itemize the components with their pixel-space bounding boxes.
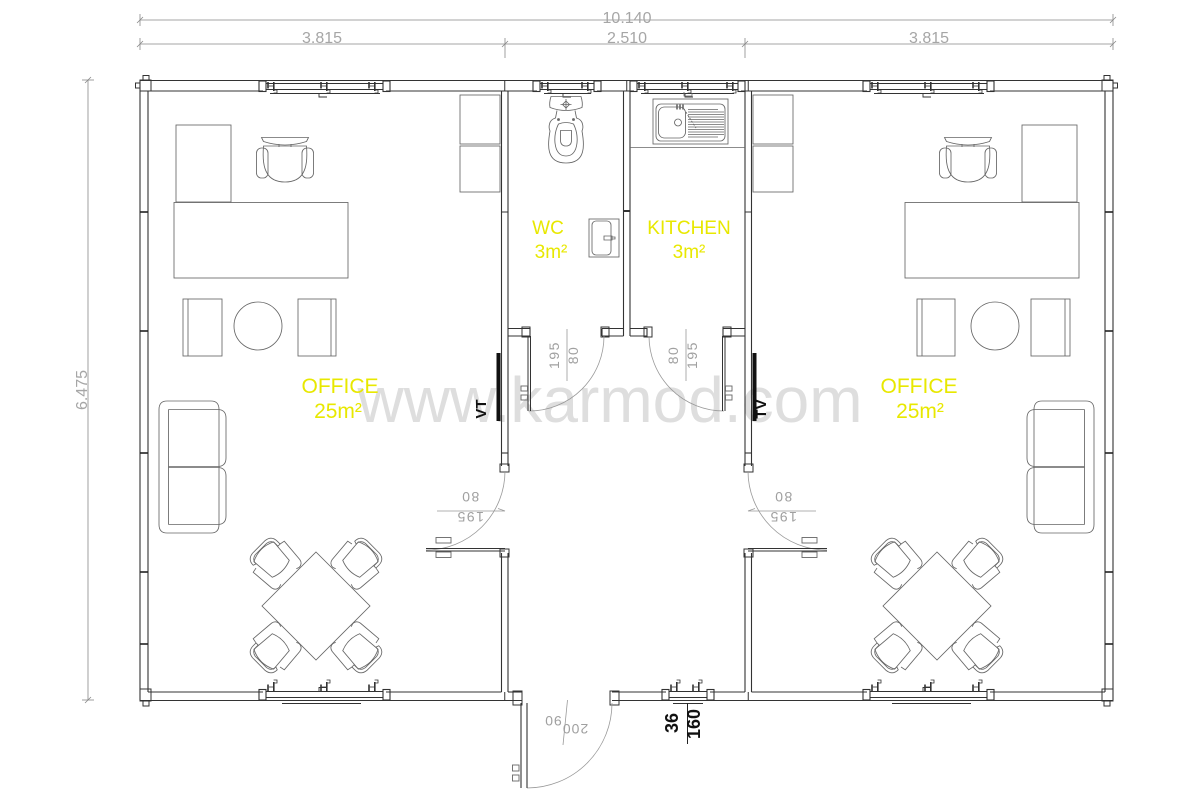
svg-text:195: 195	[684, 341, 700, 369]
svg-text:80: 80	[665, 346, 681, 365]
svg-text:WC: WC	[532, 218, 564, 239]
svg-text:3m²: 3m²	[673, 242, 706, 263]
svg-text:80: 80	[774, 489, 793, 505]
svg-text:VT: VT	[473, 399, 490, 418]
svg-text:195: 195	[769, 509, 797, 525]
svg-text:36: 36	[662, 713, 682, 733]
svg-text:90: 90	[544, 713, 562, 729]
svg-text:3.815: 3.815	[302, 30, 342, 47]
svg-text:KITCHEN: KITCHEN	[647, 218, 730, 239]
svg-text:6.475: 6.475	[74, 370, 91, 410]
svg-text:195: 195	[546, 341, 562, 369]
svg-text:OFFICE: OFFICE	[302, 375, 379, 398]
svg-text:OFFICE: OFFICE	[881, 375, 958, 398]
svg-text:www.karmod.com: www.karmod.com	[357, 364, 863, 436]
svg-text:10.140: 10.140	[603, 10, 652, 27]
svg-text:25m²: 25m²	[896, 400, 944, 423]
svg-text:160: 160	[684, 709, 704, 739]
svg-text:3.815: 3.815	[909, 30, 949, 47]
svg-text:80: 80	[565, 346, 581, 365]
svg-text:195: 195	[456, 509, 484, 525]
svg-text:TV: TV	[753, 399, 770, 418]
svg-text:200: 200	[562, 721, 588, 737]
svg-text:25m²: 25m²	[314, 400, 362, 423]
svg-text:2.510: 2.510	[607, 30, 647, 47]
svg-text:80: 80	[461, 489, 480, 505]
svg-text:3m²: 3m²	[535, 242, 568, 263]
